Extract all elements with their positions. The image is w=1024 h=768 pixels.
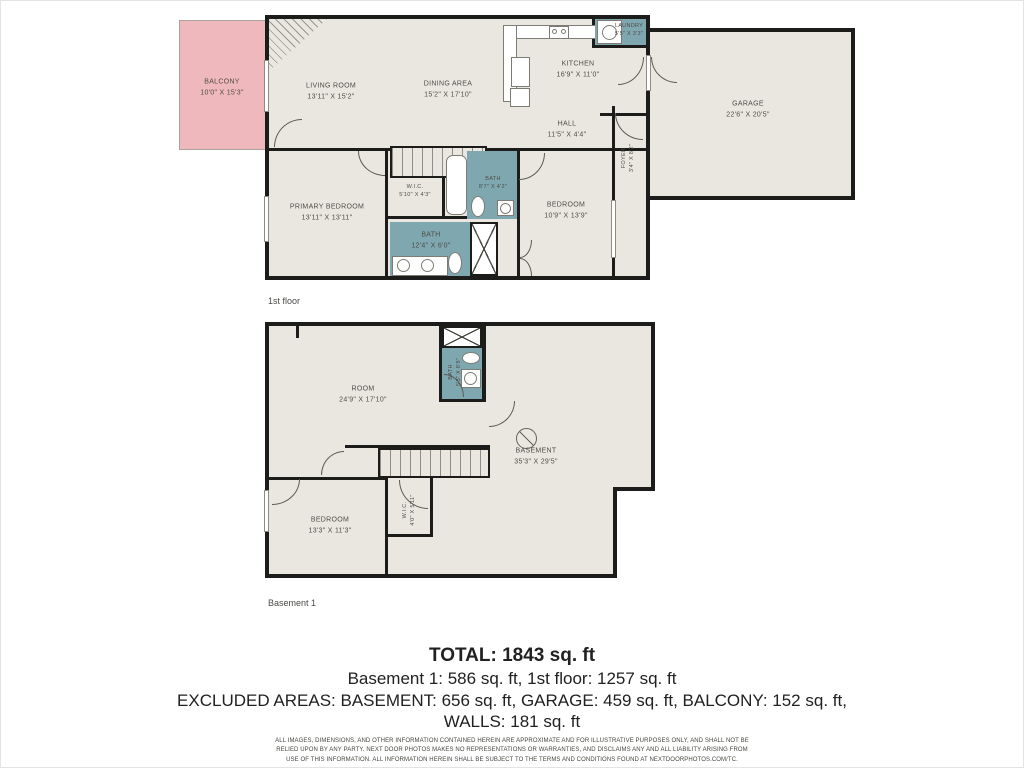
- toilet-icon: [471, 196, 485, 217]
- sink-basin-icon: [397, 259, 410, 272]
- excluded-areas-text: EXCLUDED AREAS: BASEMENT: 656 sq. ft, GA…: [0, 691, 1024, 711]
- window: [611, 200, 616, 258]
- wall: [430, 477, 433, 537]
- room-label-living-room: LIVING ROOM 13'11" X 15'2": [306, 82, 356, 103]
- stairs: [378, 448, 490, 478]
- room-label-balcony: BALCONY 10'0" X 15'3": [200, 78, 243, 99]
- wall: [265, 574, 617, 578]
- floor-caption-1st-floor: 1st floor: [268, 296, 300, 306]
- wall: [851, 32, 855, 200]
- disclaimer-line-3: SHALL BE SUBJECT TO THE TERMS AND CONDIT…: [454, 757, 738, 763]
- window: [264, 196, 269, 242]
- shower-icon: [442, 326, 482, 348]
- wall: [482, 322, 486, 402]
- room-label-laundry: LAUNDRY 5'5" X 3'3": [615, 23, 643, 39]
- wall: [265, 322, 269, 578]
- wall: [439, 399, 486, 402]
- toilet-icon: [462, 352, 480, 364]
- refrigerator: [511, 57, 530, 87]
- wall: [616, 487, 655, 491]
- room-label-bedroom: BEDROOM 10'9" X 13'9": [544, 201, 587, 222]
- floor-plan-page: { "colors": { "floor_fill": "#e9e7e0", "…: [0, 0, 1024, 768]
- room-label-bath: BATH 5'3" X 8'8": [448, 358, 464, 386]
- room-label-wic: W.I.C. 5'10" X 4'3": [399, 184, 431, 200]
- wall: [296, 322, 299, 338]
- wall: [265, 276, 650, 280]
- basement-notch: [617, 491, 655, 578]
- walls-area-text: WALLS: 181 sq. ft: [0, 712, 1024, 732]
- wall: [650, 28, 855, 32]
- wall: [592, 45, 650, 48]
- room-label-bath-large: BATH 12'4" X 6'0": [411, 231, 450, 252]
- room-label-bath-small: BATH 8'7" X 4'2": [479, 176, 507, 192]
- sink-basin-icon: [500, 203, 511, 214]
- room-label-primary-bedroom: PRIMARY BEDROOM 13'11" X 13'11": [290, 203, 364, 224]
- room-label-dining-area: DINING AREA 15'2" X 17'10": [424, 80, 472, 101]
- sink-basin-icon: [464, 372, 477, 385]
- window: [264, 490, 269, 532]
- room-label-room: ROOM 24'9" X 17'10": [339, 385, 387, 406]
- room-label-kitchen: KITCHEN 16'9" X 11'0": [557, 60, 600, 81]
- wall: [388, 534, 433, 537]
- room-label-foyer: FOYER 3'4" X 8'2": [621, 144, 637, 172]
- room-label-hall: HALL 11'5" X 4'4": [548, 120, 587, 141]
- kitchen-cabinet: [510, 88, 530, 107]
- toilet-icon: [448, 252, 462, 274]
- burner-icon: [561, 29, 566, 34]
- total-area-text: TOTAL: 1843 sq. ft: [0, 645, 1024, 667]
- burner-icon: [552, 29, 557, 34]
- disclaimer-text: ALL IMAGES, DIMENSIONS, AND OTHER INFORM…: [272, 737, 752, 765]
- room-label-basement: BASEMENT 35'3" X 29'5": [514, 447, 557, 468]
- wall: [650, 196, 851, 200]
- room-label-garage: GARAGE 22'6" X 20'5": [726, 100, 769, 121]
- wall: [651, 322, 655, 491]
- room-label-bedroom-basement: BEDROOM 13'3" X 11'3": [309, 516, 352, 537]
- sink-basin-icon: [421, 259, 434, 272]
- shower-icon: [470, 222, 498, 276]
- bathtub-icon: [446, 155, 467, 215]
- wall: [385, 477, 388, 578]
- window: [264, 60, 269, 112]
- floor-areas-text: Basement 1: 586 sq. ft, 1st floor: 1257 …: [0, 669, 1024, 689]
- room-label-wic-basement: W.I.C. 4'0" X 5'11": [402, 494, 418, 525]
- floor-caption-basement-1: Basement 1: [268, 598, 316, 608]
- wall: [613, 487, 617, 578]
